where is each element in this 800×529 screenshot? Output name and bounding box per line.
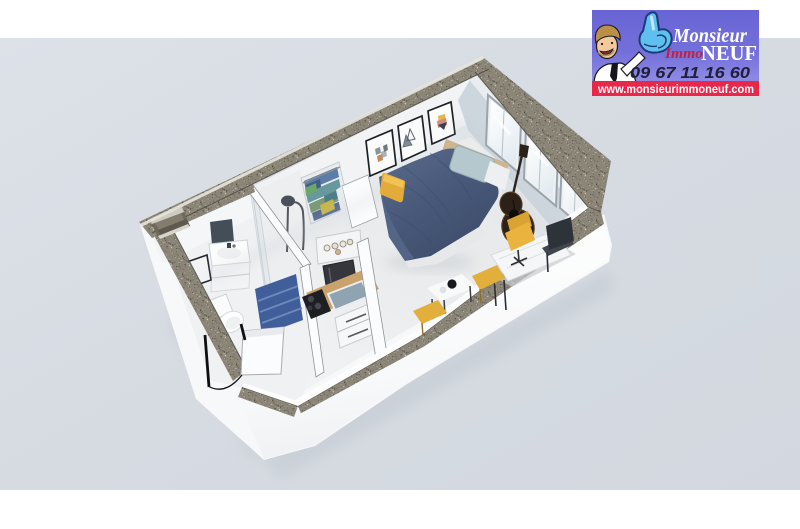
svg-text:www.monsieurimmoneuf.com: www.monsieurimmoneuf.com [597,82,754,96]
svg-text:09 67 11 16 60: 09 67 11 16 60 [630,65,750,82]
svg-text:Immo: Immo [664,46,703,62]
svg-text:NEUF: NEUF [701,41,757,65]
